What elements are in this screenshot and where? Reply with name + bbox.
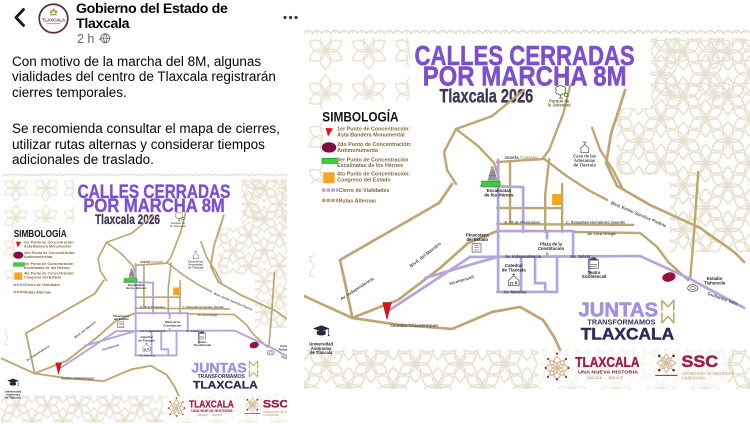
svg-text:TLAXCALA: TLAXCALA (42, 17, 65, 22)
